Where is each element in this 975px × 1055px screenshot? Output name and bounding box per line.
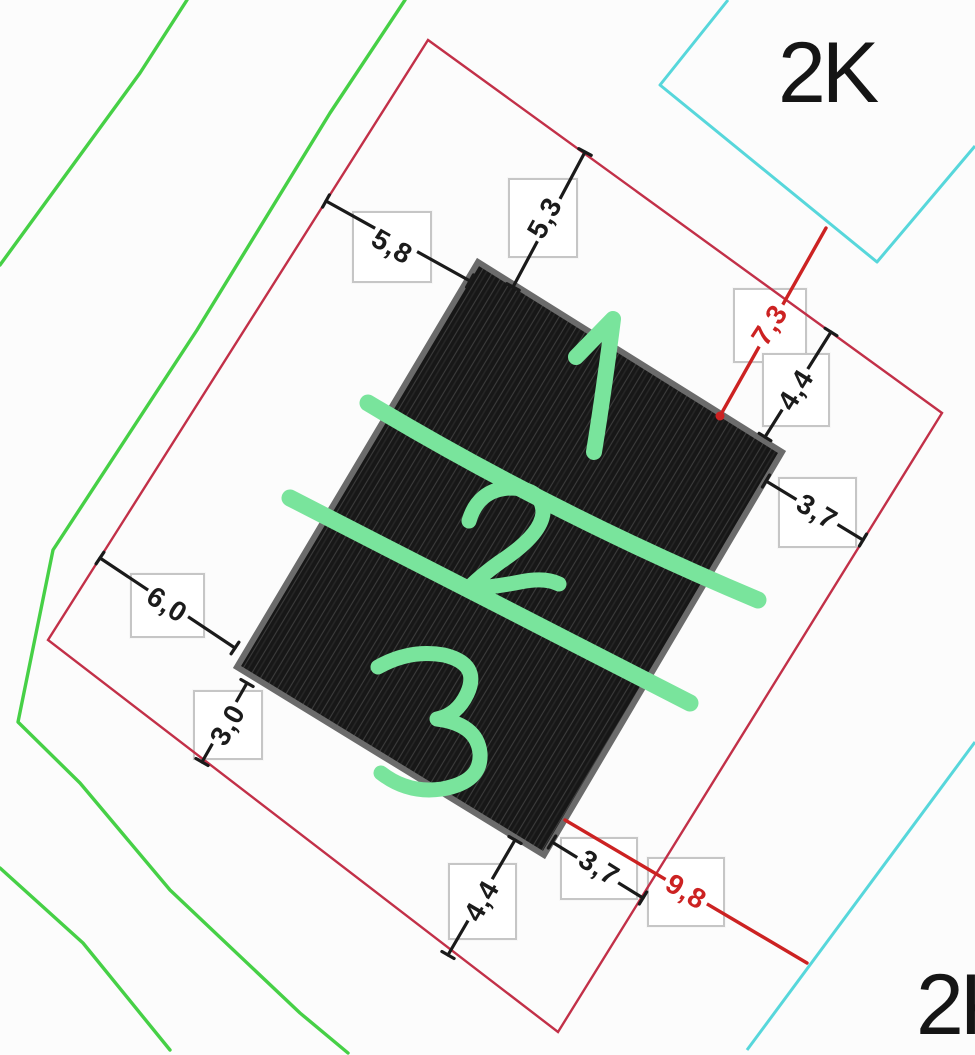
parcel-label-2k-top: 2K	[778, 30, 875, 116]
red-dimension-anchor-dot	[716, 412, 725, 421]
black-dimension-lines-group	[96, 149, 867, 959]
parcel-label-2k-bottom: 2K	[916, 962, 975, 1048]
site-plan-canvas: 5,8 5,3 7,3 4,4 3,7 6,0 3,0 4,4 3,7 9,8 …	[0, 0, 975, 1055]
